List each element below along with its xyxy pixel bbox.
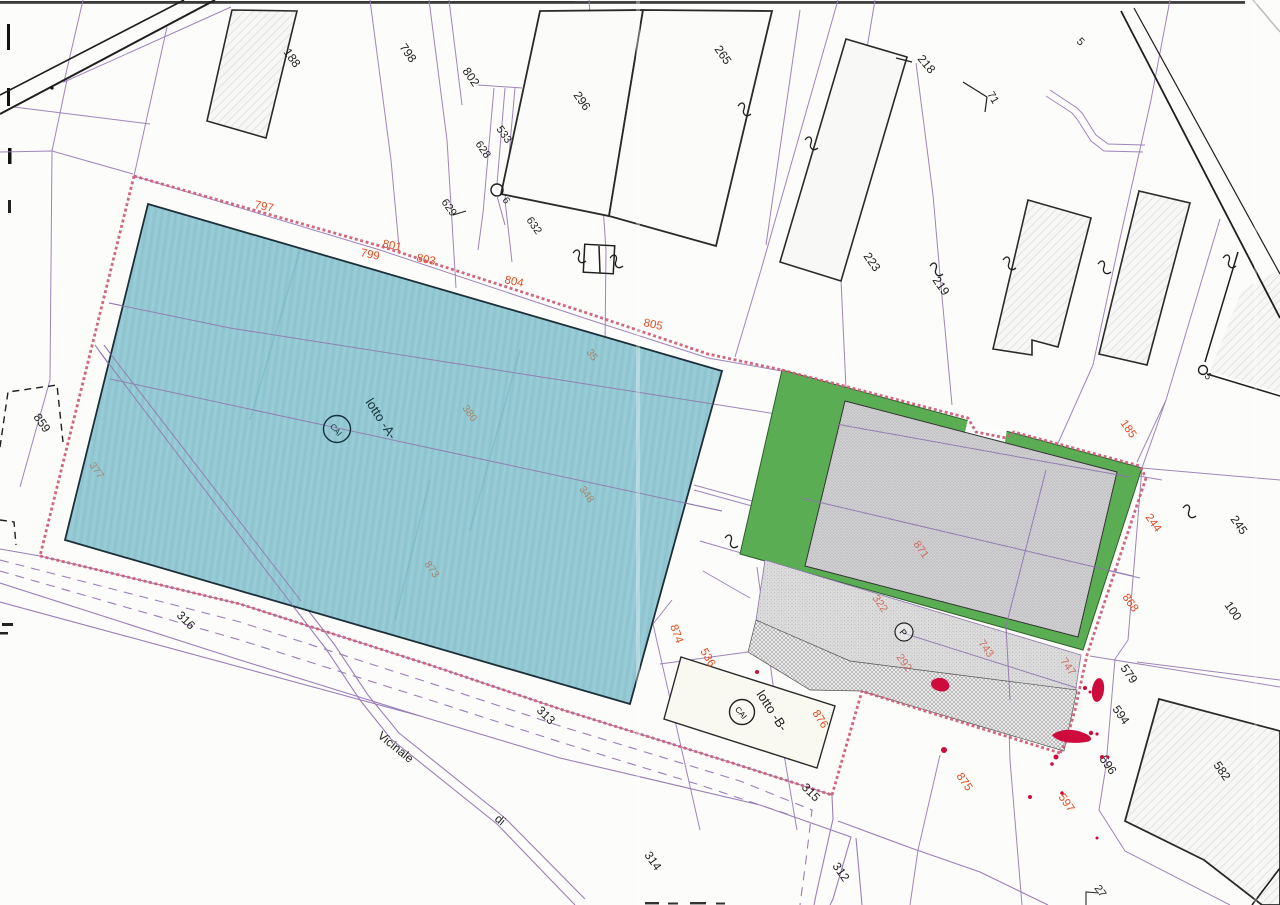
svg-text:244: 244 — [1143, 512, 1164, 535]
svg-text:875: 875 — [954, 771, 975, 794]
svg-text:185: 185 — [1118, 418, 1139, 441]
svg-text:219: 219 — [930, 274, 953, 299]
svg-text:629: 629 — [439, 197, 459, 219]
svg-text:874: 874 — [667, 623, 685, 646]
svg-text:594: 594 — [1110, 703, 1133, 728]
svg-text:803: 803 — [415, 252, 436, 268]
svg-text:5: 5 — [1202, 371, 1214, 382]
svg-text:579: 579 — [1118, 662, 1141, 687]
svg-text:868: 868 — [1120, 592, 1141, 615]
svg-text:533: 533 — [494, 124, 514, 146]
svg-text:27: 27 — [1092, 883, 1109, 900]
svg-text:632: 632 — [524, 215, 544, 237]
svg-text:Vicinale: Vicinale — [375, 728, 417, 765]
svg-text:315: 315 — [799, 780, 823, 804]
svg-text:597: 597 — [1056, 792, 1077, 815]
svg-text:805: 805 — [642, 317, 663, 333]
svg-text:71: 71 — [984, 90, 1001, 107]
svg-text:802: 802 — [460, 65, 483, 90]
svg-text:799: 799 — [359, 247, 380, 263]
svg-text:798: 798 — [397, 41, 420, 66]
svg-text:100: 100 — [1222, 599, 1245, 624]
svg-text:245: 245 — [1228, 513, 1251, 538]
svg-text:314: 314 — [642, 849, 665, 874]
svg-text:859: 859 — [31, 411, 54, 436]
svg-text:223: 223 — [861, 250, 884, 275]
svg-text:218: 218 — [915, 52, 939, 77]
svg-text:628: 628 — [473, 139, 493, 161]
svg-text:di: di — [492, 811, 508, 828]
svg-text:316: 316 — [174, 608, 198, 632]
svg-text:5: 5 — [1074, 36, 1087, 49]
svg-text:312: 312 — [830, 860, 853, 885]
